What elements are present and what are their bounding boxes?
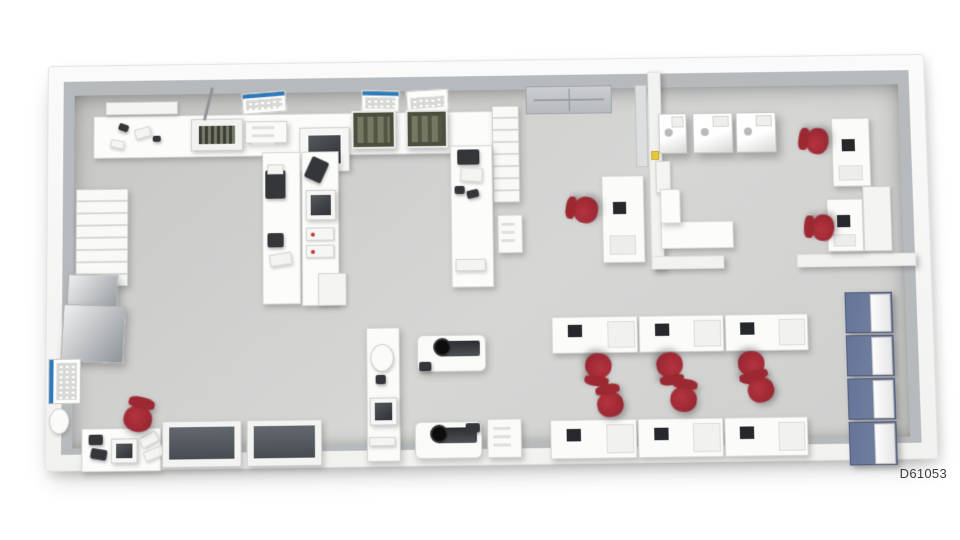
note-sheet [460, 167, 483, 182]
partition-wall-left [651, 255, 724, 269]
mill-block-2 [466, 423, 480, 433]
furniture-layer [46, 55, 938, 471]
tray-box [245, 121, 287, 144]
partition-wall-right [797, 253, 917, 268]
microscope [267, 233, 283, 247]
warning-label [651, 151, 659, 160]
tablet [457, 149, 479, 164]
mill-cart [487, 418, 522, 458]
steel-cabinet-2 [60, 304, 126, 364]
entry-door [525, 85, 612, 114]
darktop-bench-2 [247, 419, 323, 467]
row-chair-4 [591, 381, 630, 422]
locker-1 [844, 292, 893, 334]
wall-sink [49, 408, 70, 434]
room-chair-2 [803, 211, 837, 244]
small-unit-2 [306, 244, 334, 258]
side-wall-poster [48, 359, 81, 405]
flask-device [306, 190, 336, 221]
darktop-bench-1 [162, 420, 242, 468]
lab-building [45, 54, 939, 472]
bench-sink [111, 438, 138, 463]
scan-bench-6 [724, 416, 809, 457]
olive-machine-2 [405, 110, 448, 149]
mill-block-1 [419, 362, 431, 371]
room-counter-return [660, 189, 681, 224]
supply-cart [497, 214, 523, 253]
small-unit-1 [306, 227, 334, 241]
bench-device [89, 435, 103, 446]
console-button [376, 375, 386, 384]
grill-machine [191, 118, 243, 151]
partition-desk-chair [564, 192, 603, 228]
room-counter [661, 221, 734, 249]
locker-3 [847, 378, 896, 420]
partition-door-panel [635, 85, 649, 168]
furnace-2 [692, 113, 733, 154]
console-screen [370, 397, 398, 425]
scene: { "figure": { "id_label": "D61053" }, "p… [0, 0, 960, 540]
furnace-3 [735, 112, 776, 153]
room-cabinet [862, 186, 892, 251]
room-desk-1 [831, 118, 871, 187]
work-tray-2 [455, 259, 485, 272]
scan-bench-5 [638, 418, 725, 459]
tool-small [455, 186, 465, 194]
figure-label: D61053 [900, 466, 947, 481]
wall-poster-1 [241, 90, 287, 115]
press-top [267, 164, 283, 174]
room-chair-1 [796, 123, 832, 158]
furnace-1 [658, 113, 687, 154]
row-chair-5 [666, 377, 702, 416]
partition-desk [601, 175, 645, 263]
scan-bench-1 [551, 316, 638, 354]
scan-bench-4 [550, 419, 637, 460]
end-table [318, 273, 347, 306]
locker-4 [849, 421, 898, 465]
supply-rack [492, 106, 521, 203]
wall-shelf [106, 101, 178, 115]
wall-cabinet-shelves [75, 189, 128, 287]
scan-bench-2 [639, 315, 725, 353]
locker-2 [846, 335, 895, 377]
scan-bench-3 [725, 313, 809, 351]
console-tray [369, 437, 396, 447]
hand-tool-2 [153, 136, 161, 142]
olive-machine-1 [351, 110, 395, 149]
